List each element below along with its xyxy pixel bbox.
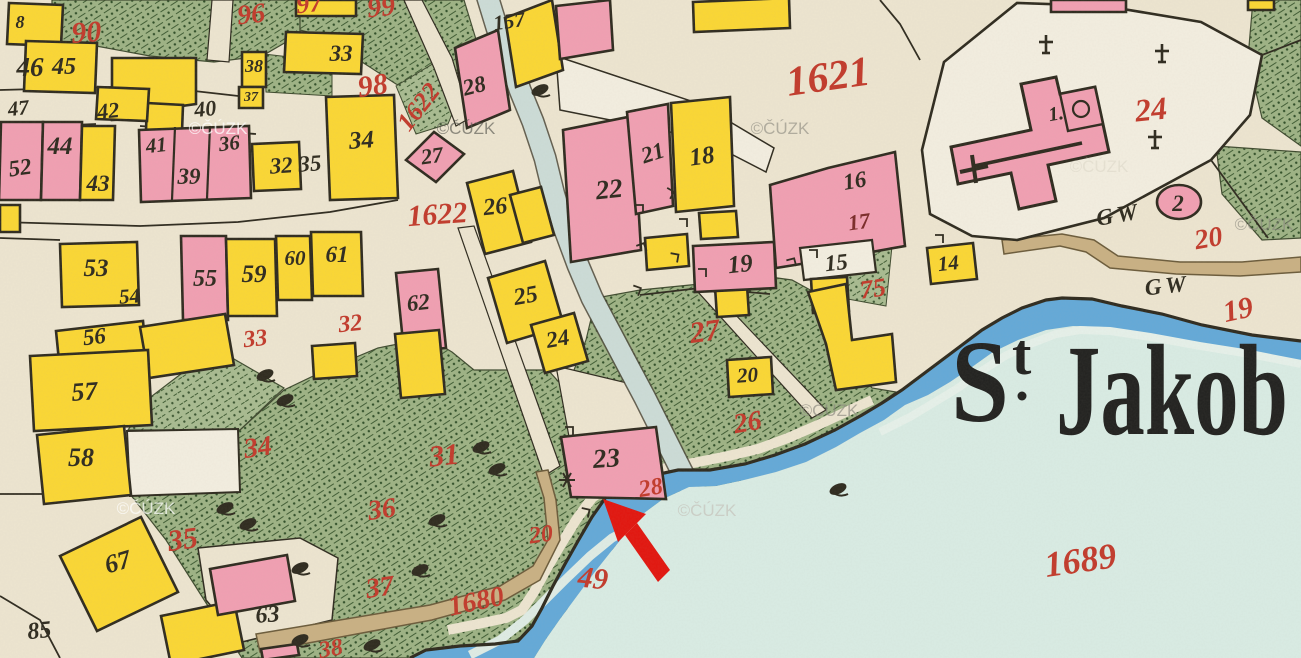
- svg-text:©ČÚZK: ©ČÚZK: [678, 501, 737, 520]
- svg-text:©ČÚZK: ©ČÚZK: [751, 119, 810, 138]
- svg-text:©ČÚZK: ©ČÚZK: [189, 119, 248, 138]
- svg-text:©ČÚZK: ©ČÚZK: [1235, 215, 1294, 234]
- svg-text:©ČÚZK: ©ČÚZK: [1070, 157, 1129, 176]
- svg-text:©ČÚZK: ©ČÚZK: [800, 401, 859, 420]
- svg-text:©ČÚZK: ©ČÚZK: [437, 119, 496, 138]
- svg-text:©ČÚZK: ©ČÚZK: [117, 499, 176, 518]
